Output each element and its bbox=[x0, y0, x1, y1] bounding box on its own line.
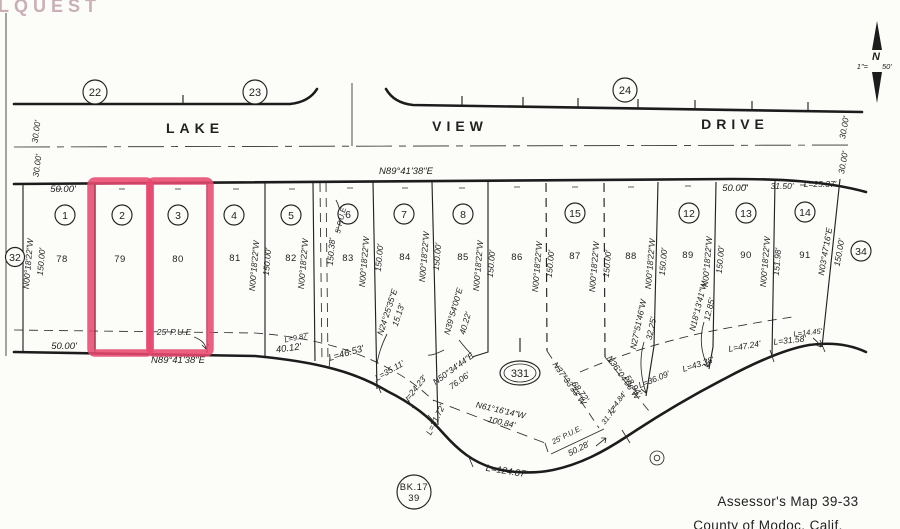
book-line1: BK.17 bbox=[400, 482, 428, 493]
block-label-24: 24 bbox=[619, 85, 631, 97]
assessor-parcel-map: 22 23 24 32 34 1 2 3 4 5 6 7 8 15 12 13 … bbox=[0, 0, 900, 529]
block-label-34: 34 bbox=[855, 246, 867, 258]
bearing-top: N89°41'38"E bbox=[379, 166, 434, 177]
parcel-86: 86 bbox=[511, 252, 523, 263]
dim-50-top-right: 50.00' bbox=[722, 183, 749, 194]
parcel-90: 90 bbox=[740, 250, 752, 261]
parcel-87: 87 bbox=[569, 251, 581, 262]
lot-label-5: 5 bbox=[288, 210, 294, 222]
watermark-logo: LQUEST bbox=[0, 0, 101, 16]
parcel-88: 88 bbox=[625, 251, 637, 262]
parcel-81: 81 bbox=[229, 253, 241, 264]
street-name-lake: LAKE bbox=[166, 120, 224, 136]
parcel-85: 85 bbox=[457, 252, 469, 263]
parcel-91: 91 bbox=[799, 250, 811, 261]
parcel-83: 83 bbox=[342, 253, 354, 264]
scanned-assessor-map-page: 22 23 24 32 34 1 2 3 4 5 6 7 8 15 12 13 … bbox=[0, 0, 900, 529]
pue-25-left: 25' P.U.E bbox=[156, 327, 192, 337]
parcel-79: 79 bbox=[114, 254, 126, 265]
parcel-80: 80 bbox=[172, 254, 184, 265]
lot-label-1: 1 bbox=[62, 210, 68, 222]
dim-50-bottom-left: 50.00' bbox=[51, 341, 78, 352]
lot-label-7: 7 bbox=[401, 209, 407, 221]
lot-label-8: 8 bbox=[460, 209, 466, 221]
parcel-82: 82 bbox=[285, 253, 297, 264]
curve-25-37: L=25.37' bbox=[804, 179, 837, 189]
book-line2: 39 bbox=[408, 493, 420, 504]
lot-label-4: 4 bbox=[231, 210, 237, 222]
credit-title: Assessor's Map 39-33 bbox=[717, 494, 858, 509]
scale-right: 50' bbox=[882, 62, 892, 71]
block-label-23: 23 bbox=[249, 87, 261, 99]
map-331-label: 331 bbox=[511, 368, 529, 380]
block-label-32: 32 bbox=[9, 252, 21, 264]
credit-county: County of Modoc, Calif. bbox=[693, 518, 843, 529]
lot-label-2: 2 bbox=[119, 210, 125, 222]
parcel-89: 89 bbox=[682, 250, 694, 261]
block-label-22: 22 bbox=[89, 87, 101, 99]
lot-label-14: 14 bbox=[799, 207, 811, 219]
parcel-78: 78 bbox=[56, 254, 68, 265]
lot-label-3: 3 bbox=[175, 210, 181, 222]
street-name-drive: DRIVE bbox=[701, 116, 769, 132]
lot-label-15: 15 bbox=[569, 208, 581, 220]
dim-50-top-left: 50.00' bbox=[50, 184, 77, 195]
parcel-84: 84 bbox=[399, 252, 411, 263]
street-name-view: VIEW bbox=[432, 118, 488, 134]
lot-label-12: 12 bbox=[683, 208, 695, 220]
scale-left: 1"= bbox=[857, 62, 869, 71]
lot-label-13: 13 bbox=[740, 208, 752, 220]
north-letter: N bbox=[872, 51, 881, 63]
dim-31-50: 31.50' bbox=[771, 181, 794, 191]
